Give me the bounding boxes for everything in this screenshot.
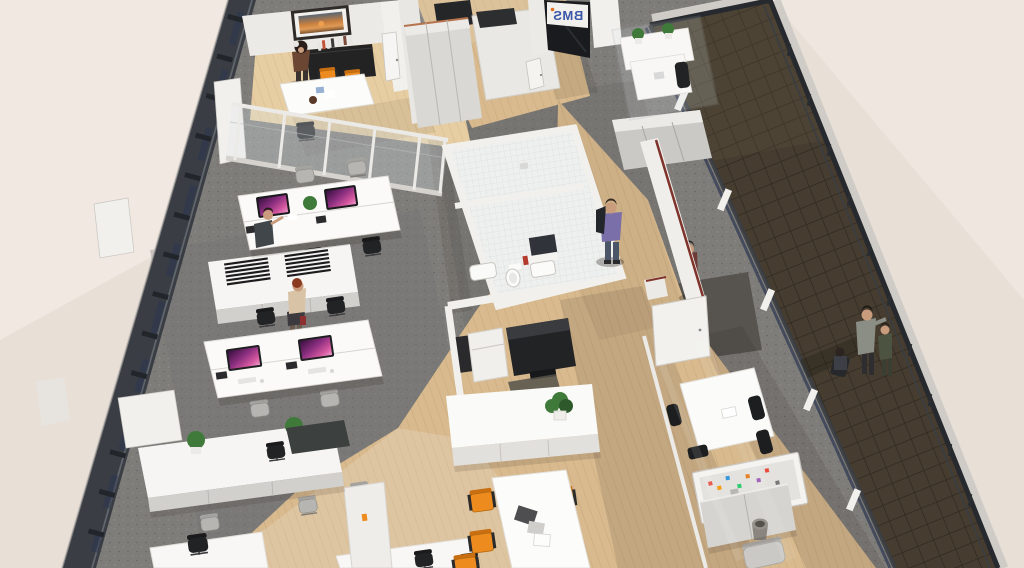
imac-monitor — [325, 186, 357, 209]
bms-sign-text: BMS — [553, 8, 583, 23]
desk-plant — [303, 196, 317, 210]
small-white-printer — [468, 328, 508, 382]
plant — [187, 431, 205, 449]
partition-bottom-center — [344, 482, 392, 568]
office-render: BMS — [0, 0, 1024, 568]
bms-sign-dot — [551, 8, 555, 12]
desk-phone — [316, 215, 327, 223]
office-render-stage: BMS — [0, 0, 1024, 568]
red-bag — [300, 316, 306, 325]
imac-monitor — [299, 336, 333, 360]
imac-monitor — [227, 346, 261, 370]
glass-office-top-right — [612, 16, 718, 120]
central-sideboard — [446, 384, 600, 466]
imac-monitor — [257, 194, 289, 217]
sink — [530, 260, 556, 278]
sunset-artwork — [291, 5, 352, 41]
